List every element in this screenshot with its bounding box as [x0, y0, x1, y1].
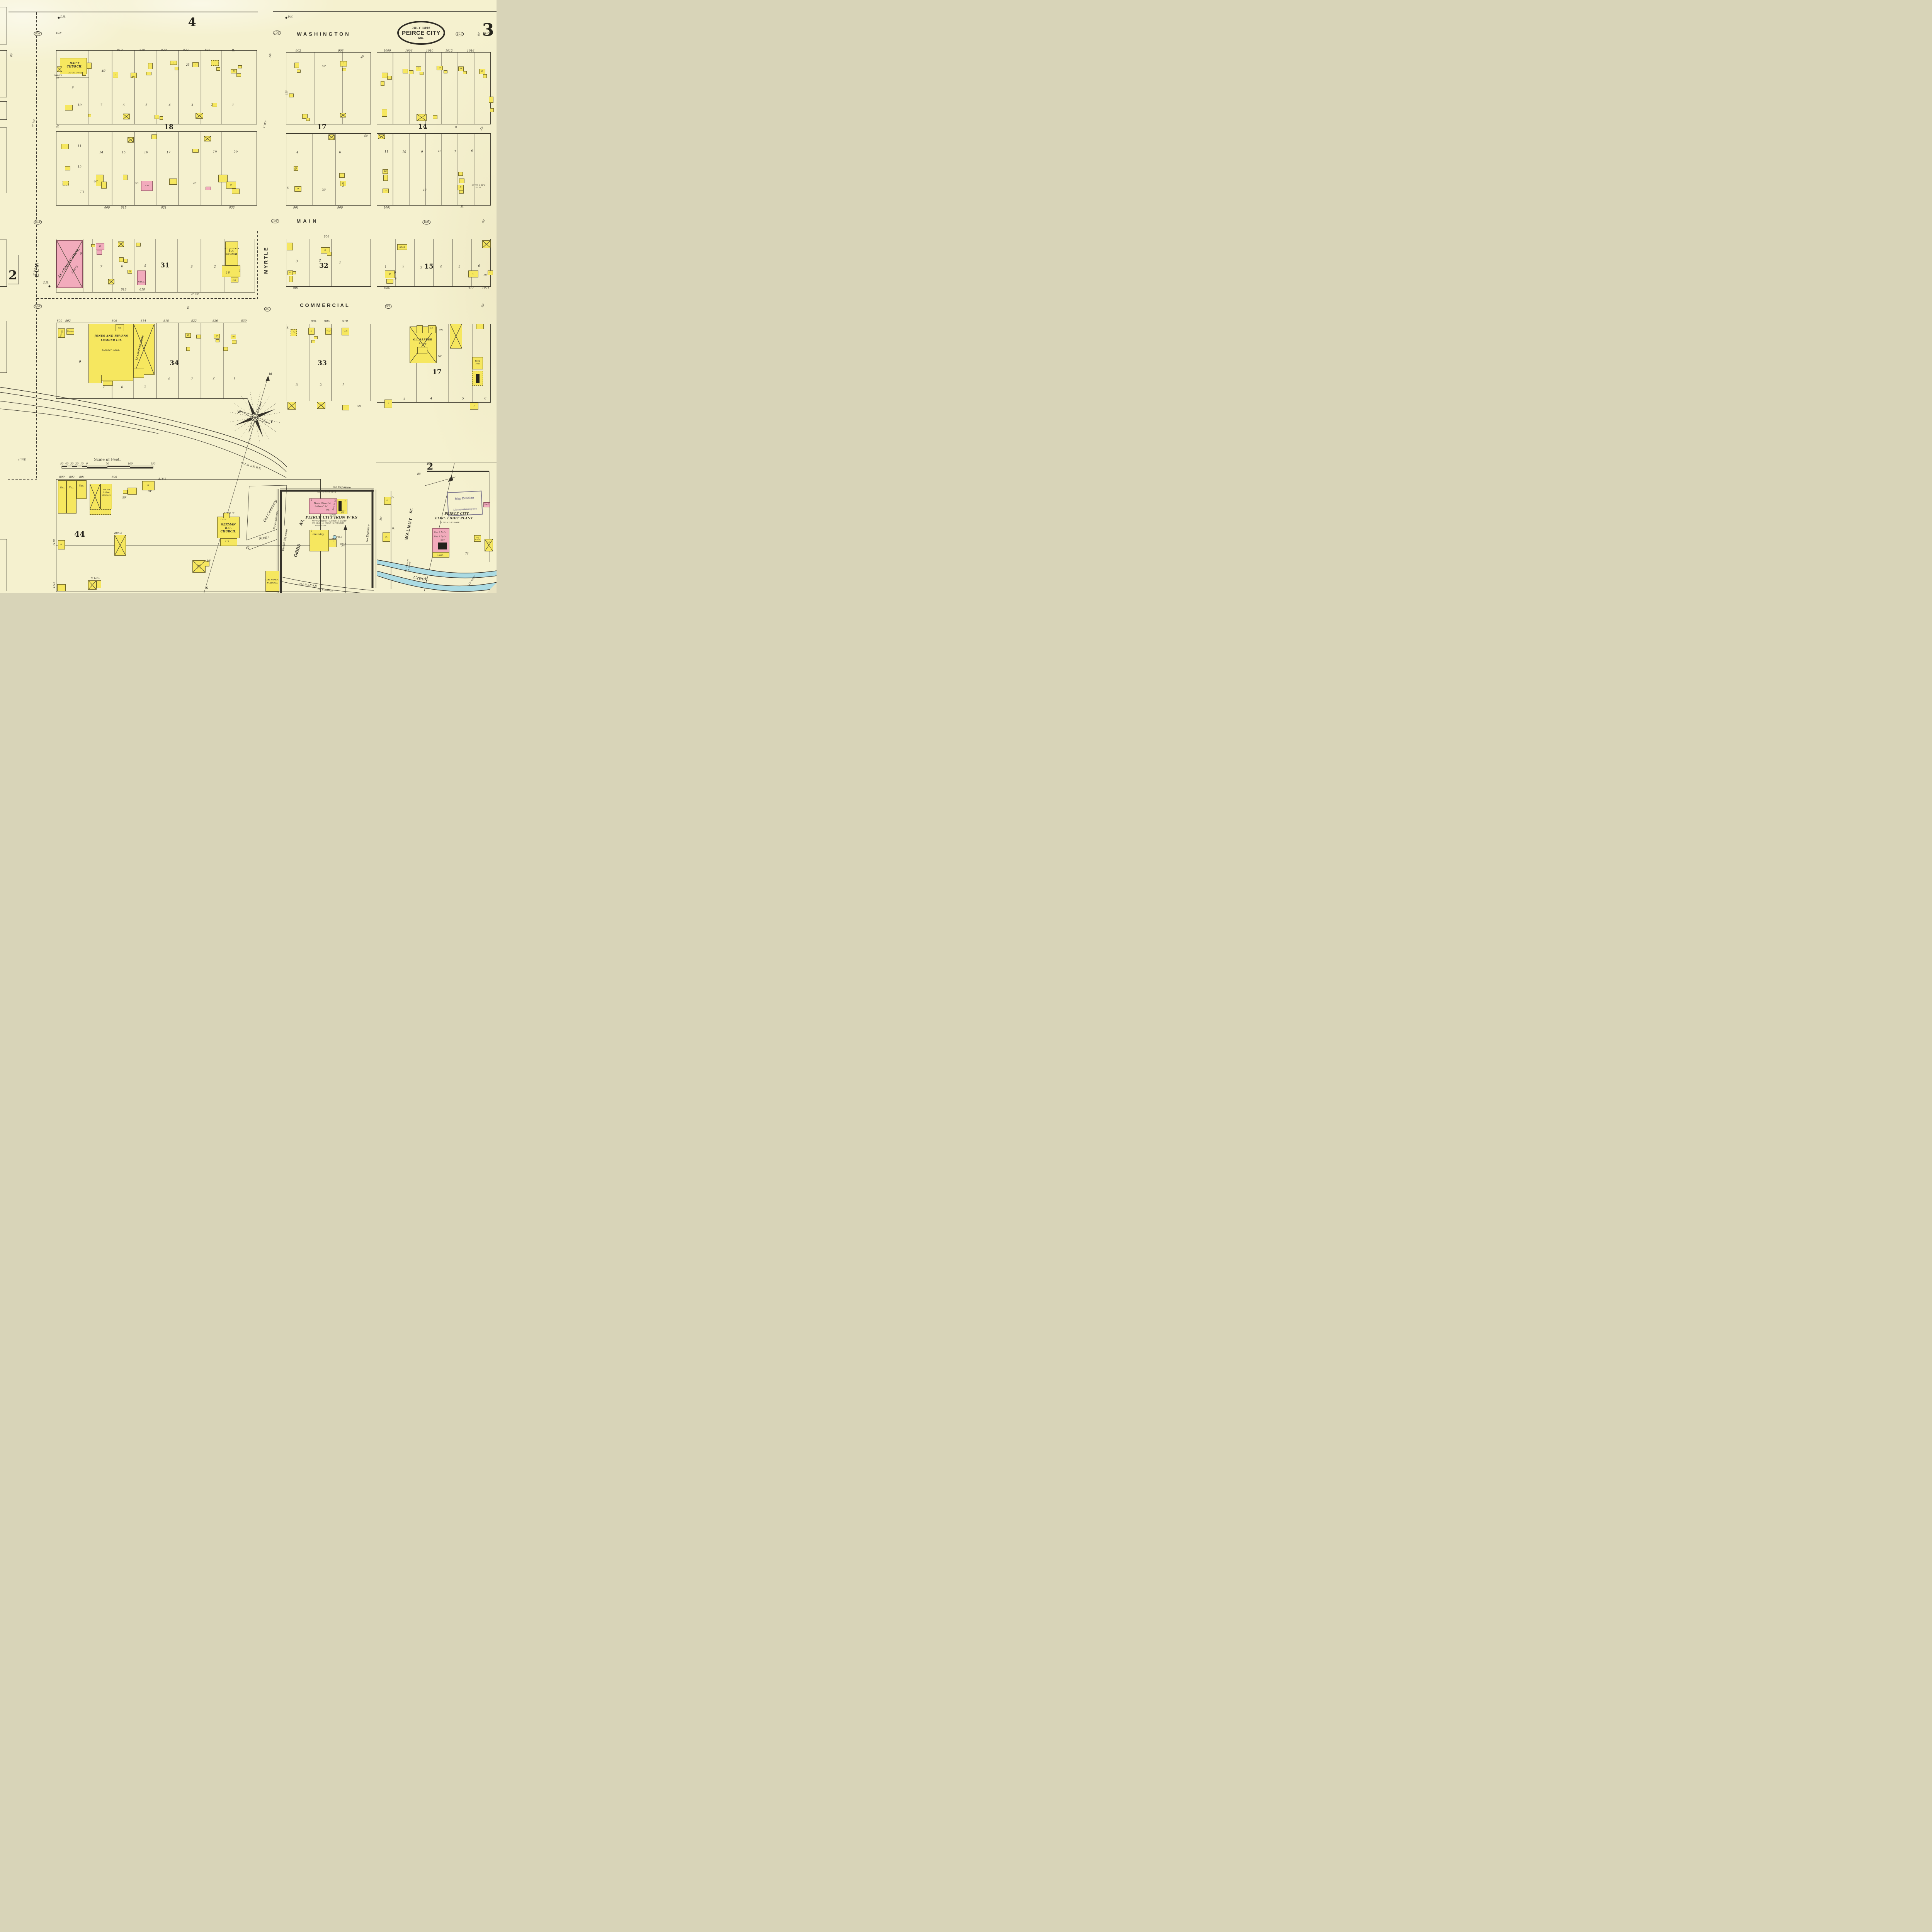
building-label: Pound — [475, 539, 480, 541]
building — [383, 175, 388, 181]
building: D — [479, 69, 485, 74]
building — [317, 402, 325, 409]
lot-number: 3 — [296, 260, 298, 263]
building: D — [96, 243, 104, 250]
sanborn-map-sheet: July 1896 Peirce City Mo. Map Division L… — [0, 0, 497, 593]
street-width-measurement: 25' — [264, 307, 271, 311]
measurement: 50' — [357, 405, 362, 408]
house-number: 806 — [112, 319, 117, 323]
lot-number: 7 — [454, 150, 456, 154]
compass-label: S — [206, 586, 208, 590]
measurement: 84' — [148, 490, 152, 493]
house-number: 909 — [337, 206, 343, 209]
title-state: Mo. — [418, 36, 424, 40]
building-label: D — [416, 67, 421, 71]
building-label: D — [488, 271, 493, 275]
building — [476, 374, 480, 383]
building — [118, 241, 124, 247]
house-number: 1010 — [426, 49, 433, 53]
business-name: LUMBER CO. — [101, 338, 122, 342]
lot-number: 5 — [145, 104, 147, 107]
lot-number: 9 — [71, 86, 73, 89]
building-label: D — [459, 67, 463, 71]
measurement: 18' — [483, 274, 487, 277]
building — [417, 325, 423, 333]
scale-bar-segment — [130, 467, 153, 468]
lot-number: 2 — [319, 259, 321, 262]
lot-number: 3 — [190, 377, 192, 380]
building: D. — [58, 540, 65, 549]
block-letter: B — [395, 278, 396, 281]
lot-number: 6 — [478, 264, 480, 268]
building — [169, 179, 177, 185]
stories-note: 1=2 — [225, 540, 230, 543]
lot-number: 10 — [402, 150, 406, 154]
house-number: 809 — [104, 206, 110, 209]
house-number: 906 — [324, 320, 330, 323]
hydrant-label: D.H. — [43, 282, 49, 284]
building-label: ½D — [342, 328, 349, 335]
building — [57, 66, 62, 72]
lot-number: 5 — [144, 385, 146, 388]
measurement: 45' — [193, 182, 197, 185]
building — [444, 70, 447, 73]
measurement: 53' — [135, 182, 139, 185]
measurement: 40' — [131, 76, 136, 79]
measurement: 80' — [417, 473, 422, 476]
scale-bar-segment — [62, 466, 67, 467]
house-number: 800 — [59, 475, 65, 479]
building-label: Haines — [67, 330, 74, 333]
margin-lot — [0, 50, 7, 97]
building — [186, 347, 190, 351]
measurement: 70' — [322, 189, 326, 192]
building — [289, 276, 293, 282]
building — [459, 179, 464, 183]
building-label: D — [340, 61, 347, 66]
building-label: D — [385, 271, 395, 278]
house-number: 818 — [139, 48, 145, 52]
plant-note: S.F.P. — [440, 540, 445, 542]
building — [293, 271, 296, 274]
lot-number: 2 — [402, 265, 404, 268]
compass-part — [258, 408, 276, 417]
building-label: D. — [58, 541, 65, 549]
building-label: D — [288, 271, 293, 275]
lot-number: 1 — [233, 377, 235, 380]
house-number: 806½ — [114, 532, 122, 535]
building: Kit — [383, 169, 388, 174]
business-name: ELEC. LIGHT PLANT — [435, 516, 473, 520]
street-label-commercial: COMMERCIAL — [300, 303, 350, 308]
lot-number: 11 — [78, 145, 82, 148]
house-number: 908 — [338, 49, 344, 53]
block-outline — [286, 324, 371, 401]
exposure-note: No Exposure — [333, 485, 351, 489]
stamp-line1: Map Division — [455, 496, 474, 500]
building: D — [287, 270, 293, 275]
building-label: Shed — [484, 504, 489, 506]
building — [91, 244, 95, 247]
compass-part — [235, 417, 253, 427]
lot-number: 2 — [320, 383, 321, 387]
building-label: D — [113, 72, 118, 78]
building: ½D — [325, 328, 332, 335]
lot-number: 1 — [342, 383, 344, 387]
building-label: Vac. — [69, 486, 74, 489]
building-label: Kit — [383, 170, 388, 173]
building-label: CUPOLA — [330, 537, 337, 539]
lot-number: 5 — [458, 265, 460, 269]
house-number: 1000 — [383, 49, 391, 53]
building — [65, 166, 70, 170]
building — [123, 490, 128, 494]
building — [148, 63, 153, 69]
lot-number: 4 — [168, 104, 170, 107]
measurement: 50' — [122, 496, 127, 499]
lot-number: 4 — [168, 378, 170, 381]
lot-number: 16 — [144, 151, 148, 154]
measurement: 102' — [56, 32, 61, 35]
building: D — [113, 72, 118, 78]
ironworks-note: NO HEAT ~ 1 STOVE IN FOUNDRY — [312, 523, 344, 525]
house-number: 901 — [293, 286, 299, 290]
symbol: Ø — [455, 126, 457, 129]
building — [232, 189, 240, 194]
building — [133, 369, 144, 378]
building — [327, 252, 332, 256]
building — [386, 279, 393, 284]
building — [88, 324, 133, 381]
building: D — [308, 328, 315, 335]
block-number: 32 — [319, 262, 328, 270]
building-label: D — [291, 330, 296, 336]
house-number: 814 — [141, 319, 146, 323]
building — [265, 571, 279, 592]
house-number: 1001 — [383, 286, 391, 290]
scale-tick: 0 — [86, 462, 88, 465]
lot-number: 3 — [403, 398, 405, 401]
building-label: D — [309, 328, 314, 334]
business-name: G.L.BARBER — [413, 338, 432, 341]
business-name: Lumber Shed. — [102, 349, 120, 352]
lot-number: 6 — [121, 265, 123, 268]
building — [218, 175, 228, 182]
building — [175, 67, 179, 70]
lot-number: 14 — [99, 151, 103, 154]
building — [128, 488, 137, 495]
building-label: D — [226, 182, 236, 188]
building: D — [488, 270, 493, 275]
lot-number: 2 — [211, 103, 213, 107]
building — [222, 265, 240, 277]
compass-part — [258, 418, 270, 425]
scale-tick: 100 — [128, 462, 133, 465]
building — [151, 134, 157, 139]
title-city: Peirce City — [402, 30, 440, 36]
stories-note: 2 — [333, 541, 334, 543]
block-letter: F. — [287, 187, 289, 190]
scale-bar-segment — [87, 467, 107, 468]
building: D — [291, 329, 297, 336]
symbol: Ø — [438, 150, 440, 153]
building — [58, 480, 66, 514]
block-outline — [286, 239, 371, 287]
building — [223, 347, 228, 351]
margin-lot — [0, 539, 7, 591]
house-number: 826 — [213, 319, 218, 323]
page-fold — [486, 583, 497, 593]
house-number: 818 — [139, 288, 145, 291]
ironworks-note: AB.-RC. — [330, 515, 336, 517]
building — [123, 114, 130, 119]
lot-number: 6 — [339, 151, 341, 154]
block-letter: E — [187, 306, 189, 310]
lot-number: 4 — [296, 151, 298, 154]
house-number: 802 — [65, 319, 71, 323]
church-name: GERMAN — [221, 523, 236, 526]
building-label: D — [469, 271, 478, 277]
building — [339, 173, 345, 178]
building — [160, 116, 163, 120]
lot-number: 13 — [80, 190, 84, 194]
measurement: 60' — [437, 354, 442, 358]
building-label: D. — [143, 481, 154, 490]
scale-tick: 50 — [60, 462, 63, 465]
lot-number: 2 — [213, 377, 214, 380]
church-name: BAP'T — [70, 61, 79, 65]
building — [123, 175, 128, 180]
street-width-measurement: 93' — [385, 304, 392, 309]
lot-number: 1 — [384, 265, 386, 269]
building — [490, 108, 494, 112]
house-number: 822 — [191, 319, 197, 323]
building-label: D — [170, 61, 177, 65]
lot-number: 15 — [122, 151, 126, 154]
margin-lot — [0, 240, 7, 287]
building — [101, 182, 107, 189]
church-name: R.C. — [225, 526, 231, 530]
measurement: 28' — [439, 329, 444, 332]
building: D. — [142, 481, 155, 490]
building: D — [340, 61, 347, 66]
building — [192, 149, 199, 153]
compass-part — [258, 403, 276, 415]
building-label: Vac.S. — [138, 281, 145, 283]
building — [329, 539, 337, 547]
lot-number: 7 — [100, 265, 102, 269]
house-number: 804 — [79, 475, 85, 479]
building — [417, 114, 427, 121]
building: 2D — [192, 560, 206, 573]
lot-number: 9 — [80, 252, 82, 255]
lot-number: 12 — [78, 165, 82, 169]
building — [489, 97, 493, 103]
title-date: July 1896 — [412, 26, 431, 30]
stories-note: 1 — [344, 500, 346, 503]
scale-tick: 30 — [70, 462, 73, 465]
block-outline — [56, 131, 257, 206]
street-label-myrtle: MYRTLE — [263, 246, 269, 274]
house-number: 833 — [229, 206, 235, 209]
school-name: SCHOOL — [267, 582, 278, 584]
building-label: Vac. — [60, 486, 65, 489]
building-label: D — [214, 334, 219, 338]
ironworks-note: Pattern ″ 2d — [315, 505, 327, 508]
building: D. — [384, 497, 391, 505]
building: D — [385, 270, 395, 278]
block-number: 34 — [170, 359, 179, 367]
measurement: 25' — [427, 463, 431, 466]
building: ½D — [342, 328, 349, 335]
plant-note: Eng. & Dyn'o — [434, 536, 446, 538]
house-number: 826 — [205, 48, 210, 52]
building — [476, 324, 484, 329]
building — [77, 480, 87, 499]
building — [287, 402, 296, 410]
building — [63, 181, 69, 185]
compass-part — [259, 418, 280, 422]
ironworks-note: Mach. Shop 1st — [314, 502, 330, 505]
scale-bar-title: Scale of Feet. — [94, 458, 121, 462]
stories-note: 1=1½ — [220, 519, 226, 521]
creek — [377, 560, 497, 578]
lot-number: 2 — [214, 265, 216, 269]
building — [108, 279, 114, 284]
building-label: Coal. — [437, 554, 444, 557]
building — [387, 76, 392, 80]
house-number: 813 — [121, 288, 126, 291]
house-number: 1006 — [405, 49, 412, 53]
building-label: 1 — [470, 403, 478, 409]
compass-part — [240, 410, 252, 417]
building-label: D. — [383, 533, 390, 541]
building: 2D — [231, 335, 236, 339]
house-number: 806 — [112, 475, 117, 479]
building — [403, 69, 408, 73]
church-name: ST. JOHN'S — [224, 248, 239, 250]
building: D — [192, 62, 199, 67]
street-label-washington: WASHINGTON — [297, 31, 350, 37]
house-number: 910 — [342, 320, 348, 323]
scale-tick: 40 — [65, 462, 68, 465]
building — [482, 240, 491, 248]
adjacent-sheet-number: 4 — [188, 16, 196, 29]
measurement: 40' — [94, 180, 98, 183]
ironworks-note: 140' TO 2 ST'Y FR. D — [317, 492, 336, 494]
building — [88, 114, 91, 117]
water-pipe-note: 4" W.P. — [18, 459, 26, 461]
ironworks-note: FUEL: COAL — [315, 525, 327, 527]
business-name: PEIRCE CITY — [445, 512, 469, 515]
building — [211, 60, 219, 66]
measurement: 45' — [102, 70, 106, 73]
lot-number: 19 — [213, 150, 217, 154]
measurement: Ph. B. — [475, 187, 481, 189]
compass-label: E — [271, 420, 273, 424]
building: D — [185, 333, 191, 338]
lot-number: 6 — [121, 386, 123, 389]
building — [297, 70, 301, 73]
ironworks-note: U.B. — [326, 510, 330, 512]
house-number: R. — [232, 49, 235, 52]
lot-number: 3 — [190, 265, 192, 269]
tower-note: 35' — [56, 77, 60, 79]
building — [306, 118, 310, 121]
building — [128, 137, 134, 143]
lot-number: 9 — [421, 150, 423, 154]
house-number: 1110 — [53, 539, 56, 546]
block-outline — [377, 133, 491, 206]
building — [61, 144, 69, 149]
building — [204, 136, 211, 141]
block-letter: E. — [287, 327, 289, 330]
building — [66, 480, 77, 514]
building — [97, 580, 101, 588]
building — [65, 105, 73, 111]
lot-number: 6 — [484, 397, 486, 400]
measurement: 76' — [465, 552, 469, 555]
block-outline — [377, 52, 491, 124]
house-number: 830 — [241, 319, 247, 323]
building-label: 2D — [193, 561, 205, 572]
building-label: Off. — [118, 327, 121, 329]
building — [236, 73, 241, 77]
house-number: 906 — [324, 235, 329, 238]
building-label: 14 — [487, 541, 490, 544]
block-number: 17 — [317, 123, 327, 131]
building-label: D — [231, 70, 236, 73]
water-pipe-note: 4" W.P. — [191, 293, 199, 296]
house-number: 417 — [468, 286, 474, 290]
building — [450, 324, 462, 349]
scale-tick: 10 — [80, 462, 83, 465]
building — [382, 109, 387, 117]
lot-number: 3 — [420, 266, 422, 269]
building-label: & Beer — [103, 492, 111, 494]
building — [216, 67, 220, 71]
house-number: 820 — [161, 48, 167, 52]
north-arrow-head — [344, 525, 347, 530]
building-label: D — [383, 189, 388, 193]
building-label: ½D — [326, 328, 331, 334]
well-label: Well — [337, 536, 342, 539]
plant-note: S.F.P. -45'-1" HOSE — [441, 522, 459, 524]
ironworks-note: JET. — [341, 512, 344, 514]
building — [417, 347, 427, 354]
building — [114, 535, 126, 556]
building — [328, 134, 335, 140]
house-number: 818 — [163, 319, 169, 323]
block-number: 44 — [74, 529, 85, 539]
building — [463, 71, 467, 74]
building-label: Foundry. — [313, 533, 325, 536]
building — [378, 134, 385, 139]
lot-number: 1 — [239, 269, 241, 272]
lot-number: 11 — [384, 150, 388, 154]
margin-lot — [0, 101, 7, 120]
church-name: CHURCH. — [221, 530, 236, 533]
house-number: 901 — [293, 206, 299, 209]
north-arrow-head — [448, 475, 453, 482]
house-number: 818½ — [158, 478, 166, 481]
building: D. — [383, 532, 390, 542]
church-name: CHURCH. — [67, 65, 83, 68]
house-number: 1116½ — [90, 577, 100, 580]
house-number: 1012 — [445, 49, 452, 53]
building: 1 — [384, 400, 392, 408]
building: D — [458, 66, 464, 71]
